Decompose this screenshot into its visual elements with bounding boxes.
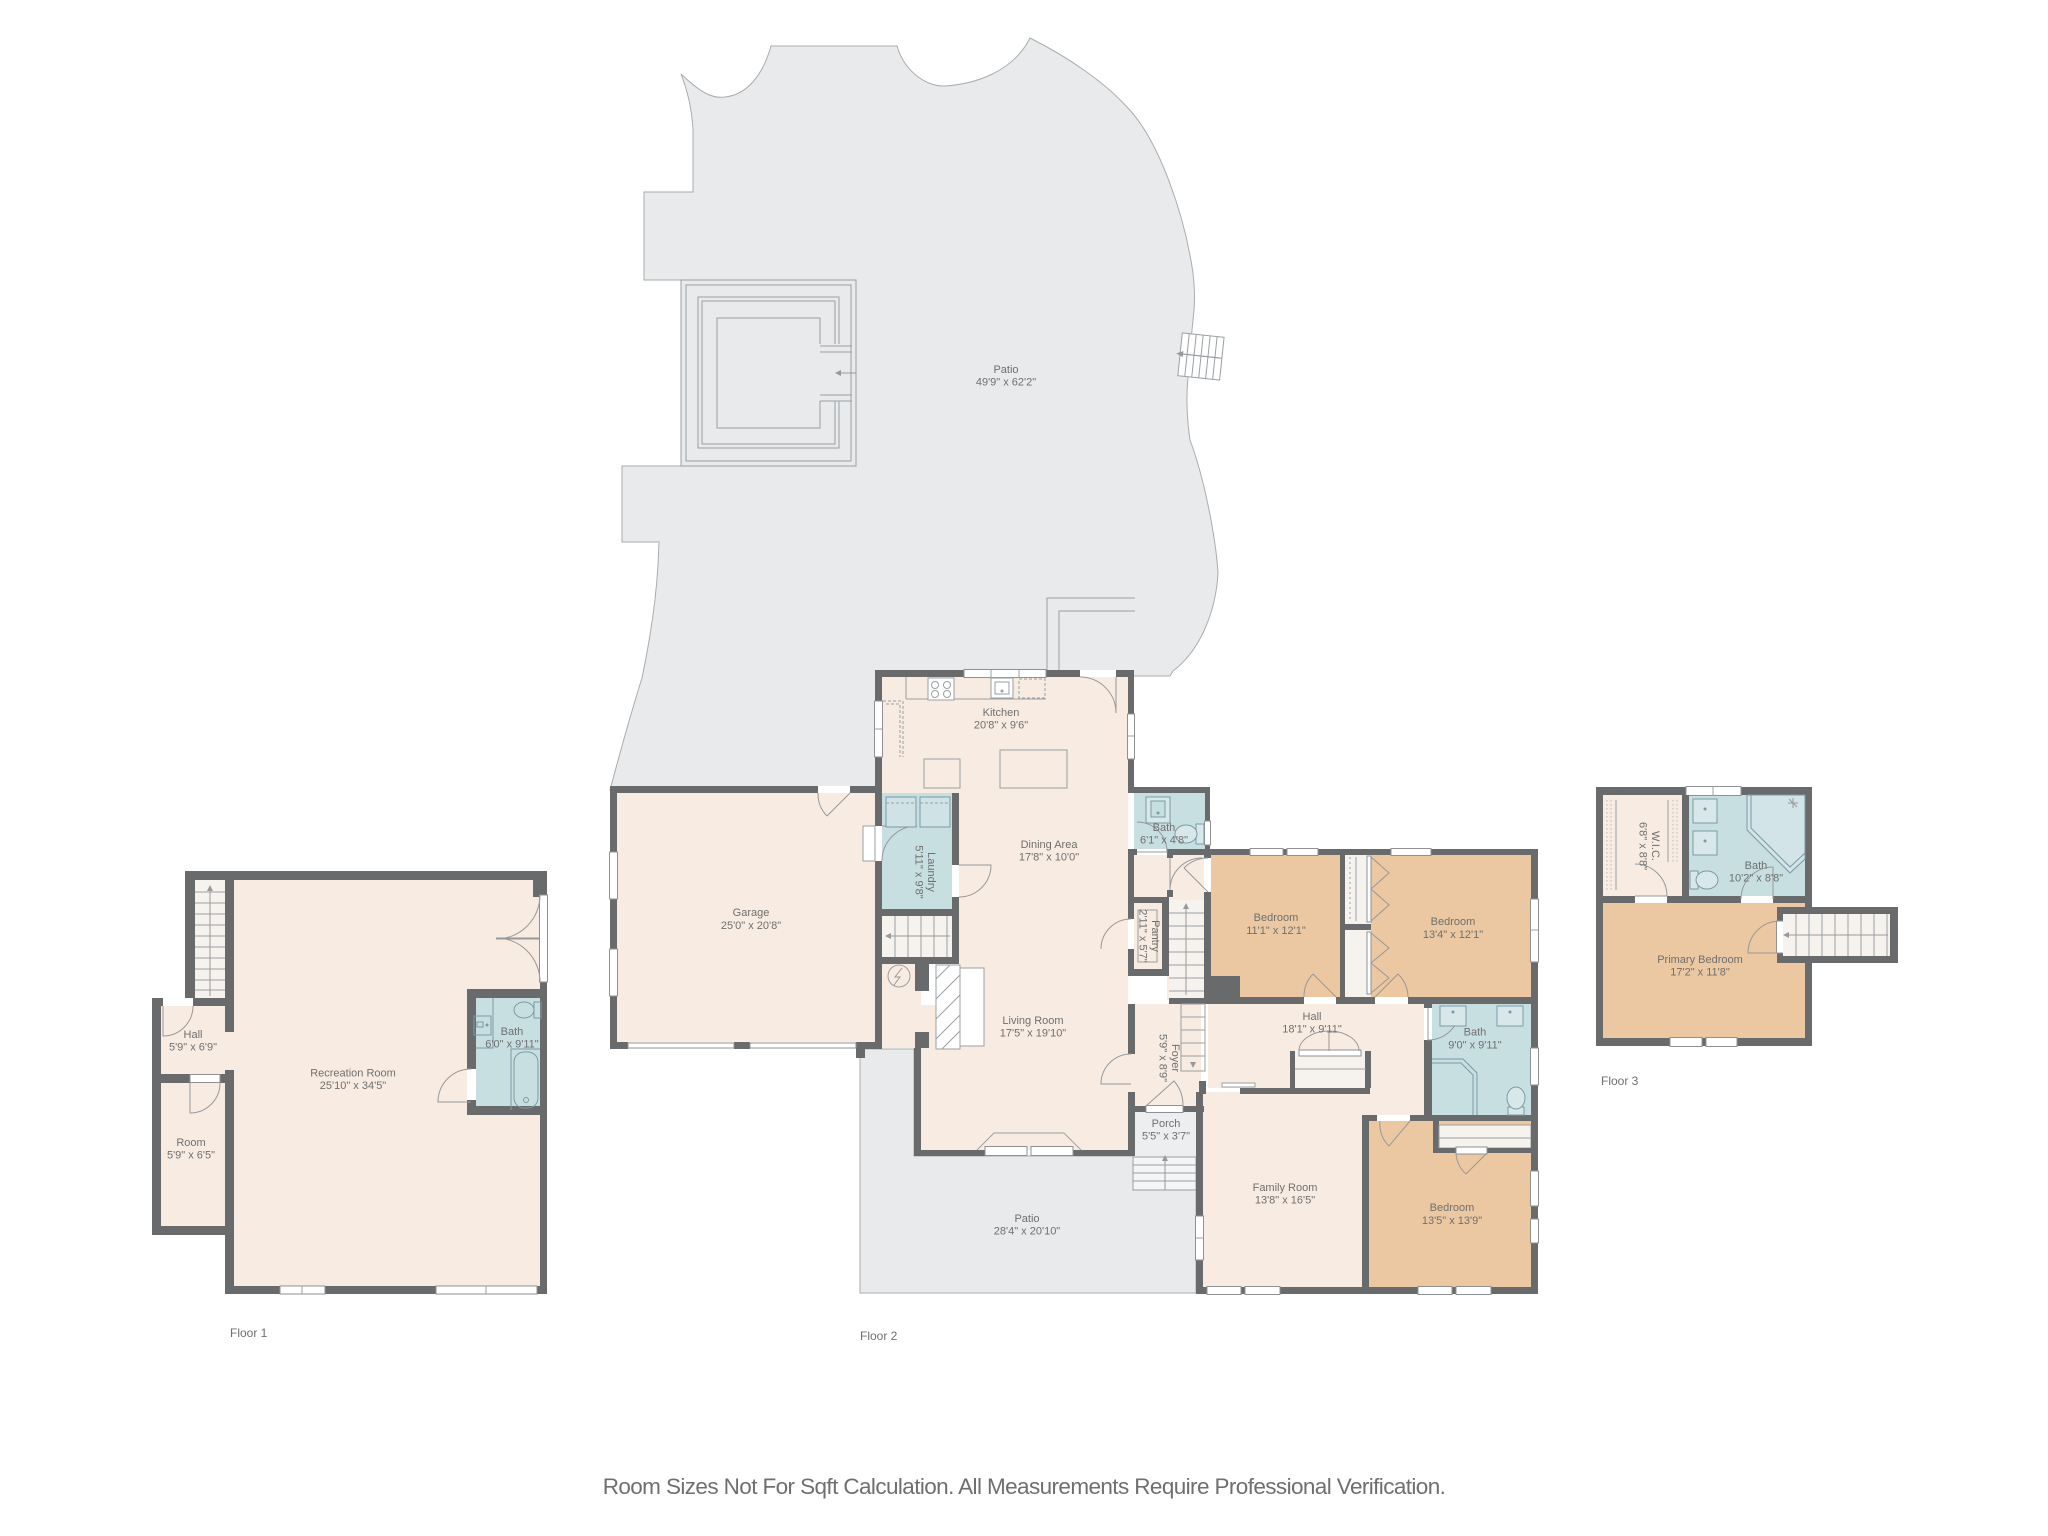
svg-text:17'2" x 11'8": 17'2" x 11'8" (1670, 967, 1730, 979)
svg-text:Family Room: Family Room (1253, 1182, 1318, 1194)
svg-text:13'8" x 16'5": 13'8" x 16'5" (1255, 1195, 1315, 1207)
svg-text:49'9" x 62'2": 49'9" x 62'2" (976, 377, 1036, 389)
svg-text:Bedroom: Bedroom (1254, 912, 1299, 924)
svg-text:5'9" x 6'9": 5'9" x 6'9" (169, 1042, 217, 1054)
svg-text:Primary Bedroom: Primary Bedroom (1657, 954, 1743, 966)
svg-text:18'1" x 9'11": 18'1" x 9'11" (1282, 1024, 1342, 1036)
svg-text:Bedroom: Bedroom (1430, 1202, 1475, 1214)
svg-text:6'8" x 8'8": 6'8" x 8'8" (1637, 822, 1649, 870)
svg-text:Patio: Patio (993, 364, 1018, 376)
svg-text:Porch: Porch (1152, 1118, 1181, 1130)
svg-text:11'1" x 12'1": 11'1" x 12'1" (1246, 925, 1306, 937)
svg-text:25'10" x 34'5": 25'10" x 34'5" (320, 1080, 387, 1092)
svg-text:Recreation Room: Recreation Room (310, 1068, 396, 1080)
svg-text:Patio: Patio (1014, 1213, 1039, 1225)
svg-text:Foyer: Foyer (1169, 1044, 1181, 1072)
svg-text:Bath: Bath (1464, 1027, 1487, 1039)
svg-text:Laundry: Laundry (925, 852, 937, 892)
svg-text:5'11" x 9'8": 5'11" x 9'8" (913, 845, 925, 898)
svg-text:6'0" x 9'11": 6'0" x 9'11" (485, 1039, 538, 1051)
svg-text:Floor 1: Floor 1 (230, 1326, 268, 1340)
svg-text:17'8" x 10'0": 17'8" x 10'0" (1019, 852, 1079, 864)
svg-text:Floor 2: Floor 2 (860, 1329, 898, 1343)
svg-text:5'5" x 3'7": 5'5" x 3'7" (1142, 1131, 1190, 1143)
svg-text:Garage: Garage (733, 907, 770, 919)
svg-text:Room Sizes Not For Sqft Calcul: Room Sizes Not For Sqft Calculation. All… (603, 1474, 1446, 1499)
svg-text:Bath: Bath (501, 1026, 524, 1038)
svg-text:10'2" x 8'8": 10'2" x 8'8" (1729, 873, 1783, 885)
svg-text:Bath: Bath (1153, 822, 1176, 834)
svg-text:W.I.C.: W.I.C. (1649, 831, 1661, 861)
svg-text:28'4" x 20'10": 28'4" x 20'10" (994, 1226, 1061, 1238)
svg-text:Living Room: Living Room (1002, 1015, 1063, 1027)
svg-text:6'1" x 4'8": 6'1" x 4'8" (1140, 835, 1188, 847)
svg-text:13'5" x 13'9": 13'5" x 13'9" (1422, 1215, 1482, 1227)
svg-text:Bath: Bath (1745, 860, 1768, 872)
svg-text:Hall: Hall (1303, 1011, 1322, 1023)
svg-text:Bedroom: Bedroom (1431, 916, 1476, 928)
svg-text:2'11" x 5'7": 2'11" x 5'7" (1137, 909, 1149, 962)
svg-text:Floor 3: Floor 3 (1601, 1074, 1639, 1088)
svg-text:Dining Area: Dining Area (1021, 839, 1079, 851)
svg-text:5'9" x 6'5": 5'9" x 6'5" (167, 1150, 215, 1162)
svg-text:9'0" x 9'11": 9'0" x 9'11" (1448, 1040, 1501, 1052)
svg-text:20'8" x 9'6": 20'8" x 9'6" (974, 720, 1028, 732)
svg-text:Room: Room (176, 1137, 205, 1149)
svg-text:25'0" x 20'8": 25'0" x 20'8" (721, 920, 781, 932)
svg-text:13'4" x 12'1": 13'4" x 12'1" (1423, 929, 1483, 941)
svg-text:Pantry: Pantry (1149, 920, 1161, 952)
svg-text:Hall: Hall (184, 1029, 203, 1041)
svg-text:Kitchen: Kitchen (983, 707, 1020, 719)
svg-text:5'9" x 8'9": 5'9" x 8'9" (1157, 1034, 1169, 1082)
svg-text:17'5" x 19'10": 17'5" x 19'10" (1000, 1028, 1067, 1040)
